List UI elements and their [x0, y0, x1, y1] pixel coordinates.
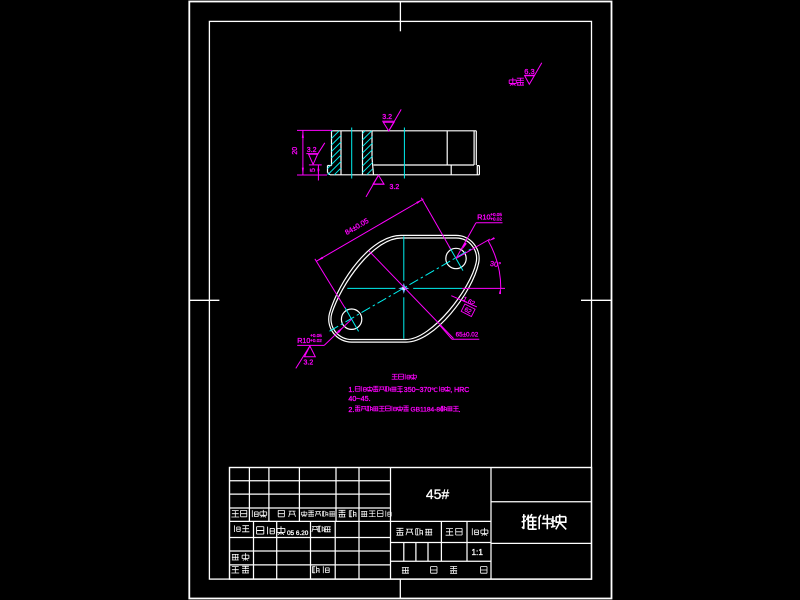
- svg-text:3.2: 3.2: [390, 184, 400, 191]
- svg-text:45#: 45#: [426, 486, 450, 502]
- svg-text:350~370: 350~370: [404, 387, 432, 394]
- svg-text:05 6.20: 05 6.20: [287, 530, 309, 537]
- svg-text:65±0.02: 65±0.02: [456, 331, 479, 338]
- svg-text:2.: 2.: [348, 405, 354, 414]
- svg-text:30°: 30°: [490, 259, 502, 269]
- svg-text:1:1: 1:1: [472, 548, 484, 557]
- svg-text:+0.02: +0.02: [490, 217, 502, 222]
- svg-text:, HRC: , HRC: [450, 387, 469, 394]
- svg-text:GB1184-80: GB1184-80: [411, 407, 445, 414]
- svg-text:40~45.: 40~45.: [348, 394, 370, 403]
- svg-text:1.: 1.: [348, 385, 354, 394]
- svg-text:+0.02: +0.02: [310, 338, 322, 343]
- svg-text:20: 20: [292, 147, 299, 155]
- svg-text:R10: R10: [297, 336, 310, 345]
- svg-text:,: ,: [400, 385, 402, 394]
- svg-text:℃: ℃: [431, 387, 438, 394]
- svg-text:3.2: 3.2: [304, 360, 314, 367]
- svg-text:.: .: [459, 405, 461, 414]
- svg-text:R10: R10: [477, 213, 490, 222]
- svg-text:5: 5: [310, 168, 317, 172]
- svg-text:3.2: 3.2: [382, 114, 392, 121]
